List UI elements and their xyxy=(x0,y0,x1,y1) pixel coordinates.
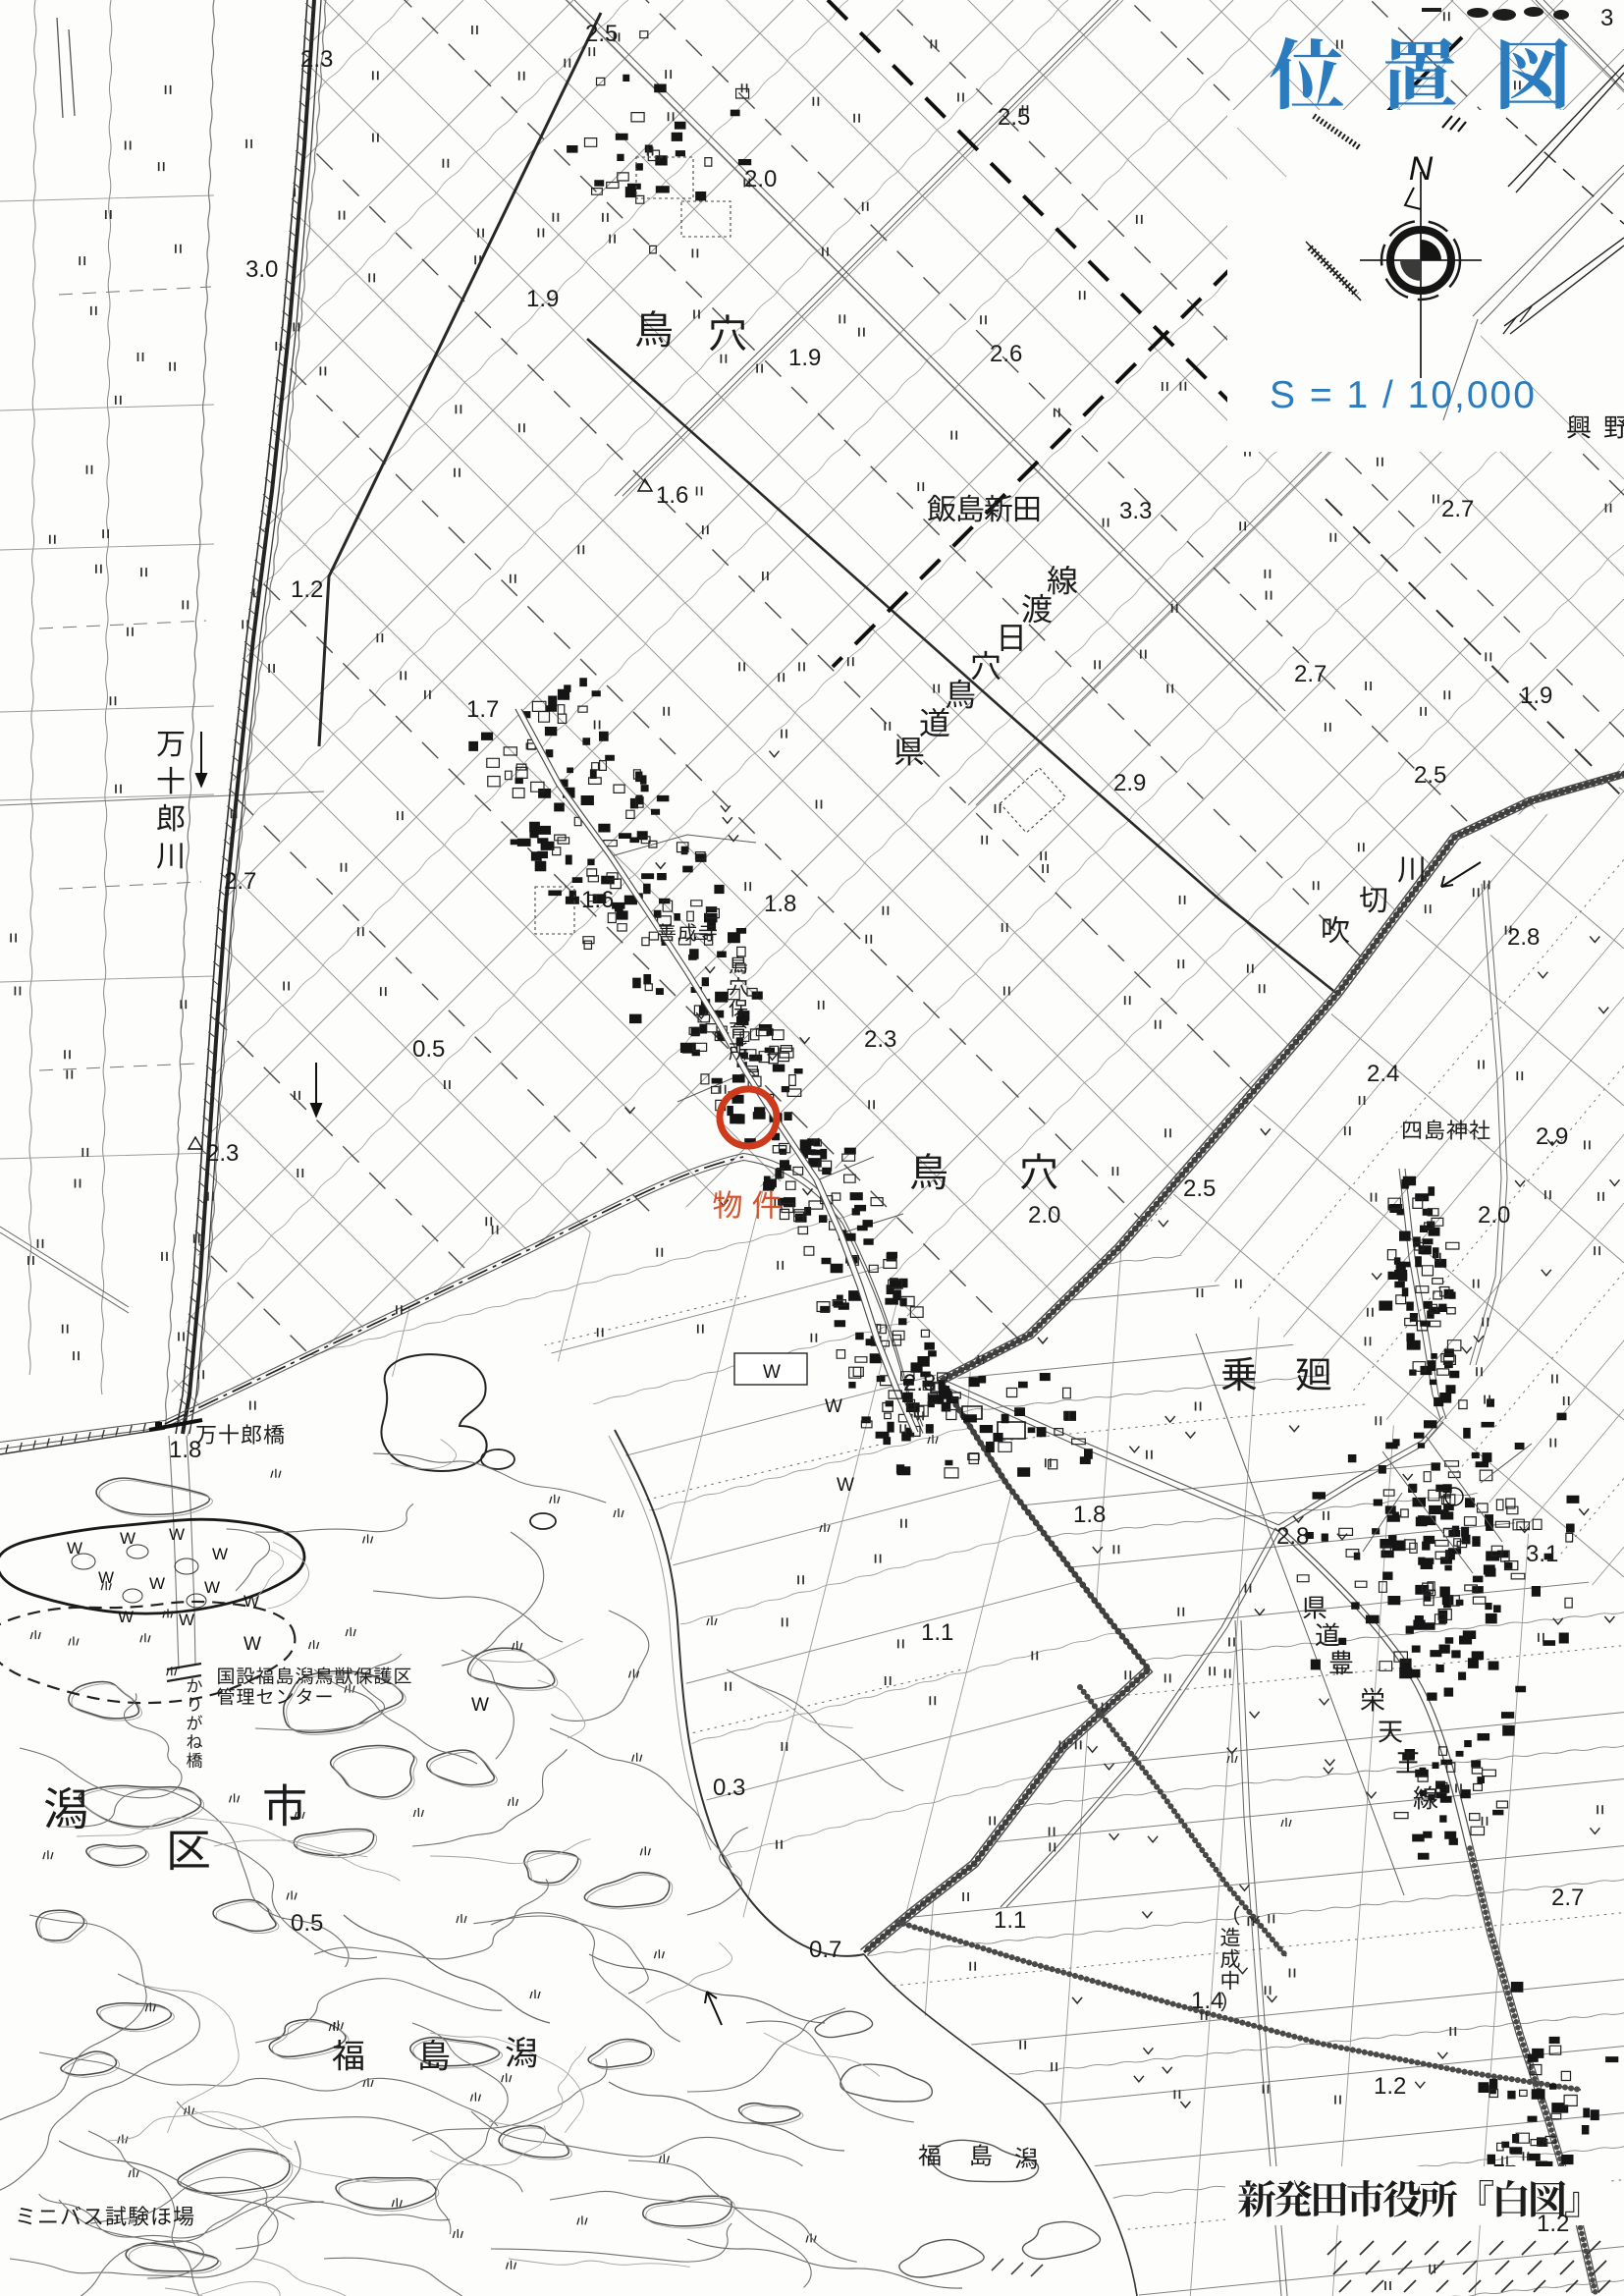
svg-text:3: 3 xyxy=(1600,5,1613,31)
svg-text:W: W xyxy=(244,1592,259,1611)
svg-text:2.8: 2.8 xyxy=(1507,924,1540,951)
svg-text:2.0: 2.0 xyxy=(1478,1202,1510,1229)
svg-text:1.6: 1.6 xyxy=(656,482,688,509)
svg-text:2.3: 2.3 xyxy=(300,46,333,73)
svg-text:1.8: 1.8 xyxy=(169,1437,201,1463)
svg-text:3.0: 3.0 xyxy=(245,256,278,283)
svg-text:W: W xyxy=(118,1608,134,1626)
svg-text:1.6: 1.6 xyxy=(581,887,614,913)
svg-text:1.2: 1.2 xyxy=(1537,2211,1569,2237)
svg-text:2.6: 2.6 xyxy=(990,341,1022,367)
svg-text:2.0: 2.0 xyxy=(1028,1202,1060,1229)
svg-text:3.3: 3.3 xyxy=(1119,498,1152,524)
svg-text:3.1: 3.1 xyxy=(1526,1541,1558,1567)
svg-text:W: W xyxy=(471,1695,489,1716)
svg-text:0.3: 0.3 xyxy=(713,1775,745,1801)
svg-text:2.8: 2.8 xyxy=(903,1370,936,1396)
svg-text:2.0: 2.0 xyxy=(744,166,777,192)
svg-text:W: W xyxy=(763,1362,781,1383)
svg-text:1.8: 1.8 xyxy=(764,891,796,917)
svg-text:S = 1 / 10,000: S = 1 / 10,000 xyxy=(1270,374,1537,416)
svg-text:1.9: 1.9 xyxy=(526,286,559,312)
svg-text:N: N xyxy=(1409,150,1434,188)
svg-text:2.5: 2.5 xyxy=(1414,762,1446,789)
svg-text:W: W xyxy=(67,1539,82,1558)
svg-text:1.7: 1.7 xyxy=(466,696,499,723)
svg-text:1.9: 1.9 xyxy=(788,345,821,371)
svg-text:0.5: 0.5 xyxy=(291,1910,323,1937)
svg-text:W: W xyxy=(837,1475,854,1496)
svg-text:0.5: 0.5 xyxy=(412,1036,445,1063)
svg-text:2.8: 2.8 xyxy=(1276,1523,1309,1550)
svg-text:2.3: 2.3 xyxy=(206,1140,239,1167)
svg-text:2.5: 2.5 xyxy=(998,104,1030,131)
svg-text:2.9: 2.9 xyxy=(1536,1123,1568,1150)
svg-text:1.9: 1.9 xyxy=(1520,683,1552,709)
svg-text:W: W xyxy=(179,1611,194,1629)
svg-text:W: W xyxy=(212,1545,228,1563)
svg-text:1.2: 1.2 xyxy=(1374,2073,1406,2100)
svg-text:2.7: 2.7 xyxy=(1294,661,1326,687)
svg-text:W: W xyxy=(149,1574,165,1593)
svg-text:W: W xyxy=(204,1578,220,1597)
svg-text:2.5: 2.5 xyxy=(585,21,618,47)
svg-text:2.3: 2.3 xyxy=(864,1026,896,1053)
svg-text:2.7: 2.7 xyxy=(1551,1885,1584,1911)
svg-text:1.8: 1.8 xyxy=(1073,1502,1106,1528)
svg-text:1.1: 1.1 xyxy=(921,1619,953,1646)
svg-text:1.4: 1.4 xyxy=(1191,1988,1223,2014)
svg-text:0.7: 0.7 xyxy=(809,1937,841,1963)
svg-text:W: W xyxy=(169,1525,185,1544)
svg-text:2.7: 2.7 xyxy=(224,868,256,895)
svg-text:W: W xyxy=(825,1396,842,1417)
svg-text:2.7: 2.7 xyxy=(1441,496,1474,522)
svg-text:2.5: 2.5 xyxy=(1183,1175,1216,1202)
svg-text:2.9: 2.9 xyxy=(1113,770,1146,796)
svg-text:2.4: 2.4 xyxy=(1367,1061,1399,1087)
svg-text:1.1: 1.1 xyxy=(994,1907,1026,1934)
svg-text:1.2: 1.2 xyxy=(291,576,323,603)
svg-text:W: W xyxy=(244,1634,261,1655)
